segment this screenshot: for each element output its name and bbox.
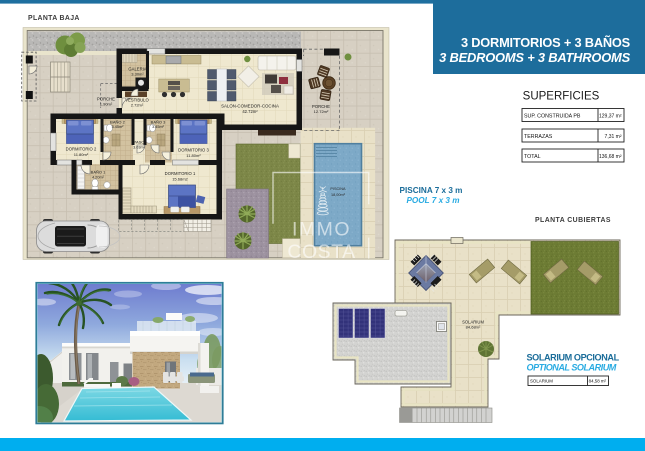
svg-text:DORMITORIO 3: DORMITORIO 3	[178, 148, 209, 153]
svg-text:SALON-COMEDOR-COCINA: SALON-COMEDOR-COCINA	[221, 104, 279, 109]
svg-text:3.30m²: 3.30m²	[131, 72, 144, 77]
svg-text:4.20m²: 4.20m²	[92, 176, 105, 180]
svg-text:2.72m²: 2.72m²	[131, 103, 144, 108]
svg-text:PLANTA BAJA: PLANTA BAJA	[28, 15, 80, 22]
svg-text:PASO: PASO	[134, 140, 145, 145]
svg-text:PLANTA CUBIERTAS: PLANTA CUBIERTAS	[535, 217, 611, 224]
svg-text:TERRAZAS: TERRAZAS	[524, 134, 553, 140]
svg-text:PISCINA 7 x 3 m: PISCINA 7 x 3 m	[400, 186, 463, 195]
svg-text:BAÑO 1: BAÑO 1	[91, 170, 106, 175]
svg-text:DORMITORIO 2: DORMITORIO 2	[66, 147, 97, 152]
svg-text:15.68m2: 15.68m2	[172, 177, 188, 182]
svg-text:3.45m²: 3.45m²	[152, 125, 165, 129]
svg-text:SOLARIUM: SOLARIUM	[530, 379, 553, 384]
svg-text:POOL 7 x 3 m: POOL 7 x 3 m	[406, 196, 459, 205]
svg-text:3.45m²: 3.45m²	[112, 125, 125, 129]
svg-text:136,68 m²: 136,68 m²	[599, 154, 622, 160]
svg-text:PISCINA: PISCINA	[330, 187, 346, 191]
svg-text:42.72m²: 42.72m²	[242, 109, 258, 114]
svg-text:COSTA: COSTA	[287, 241, 355, 263]
svg-text:TOTAL: TOTAL	[524, 154, 541, 160]
svg-text:129,37 m²: 129,37 m²	[599, 114, 622, 120]
svg-text:84,58 m²: 84,58 m²	[589, 379, 607, 384]
svg-text:3 DORMITORIOS + 3 BAÑOS: 3 DORMITORIOS + 3 BAÑOS	[461, 35, 631, 50]
svg-text:BAÑO 2: BAÑO 2	[110, 120, 125, 125]
svg-text:OPTIONAL SOLARIUM: OPTIONAL SOLARIUM	[527, 363, 617, 373]
svg-text:SUPERFICIES: SUPERFICIES	[523, 91, 600, 103]
svg-text:12.72m²: 12.72m²	[314, 109, 329, 114]
svg-text:SUP. CONSTRUIDA PB: SUP. CONSTRUIDA PB	[524, 114, 581, 120]
svg-text:7,31 m²: 7,31 m²	[605, 134, 622, 140]
svg-text:11.80m²: 11.80m²	[186, 153, 201, 158]
svg-text:18,00m²: 18,00m²	[331, 193, 346, 197]
svg-text:BAÑO 3: BAÑO 3	[151, 120, 166, 125]
svg-text:84,68m²: 84,68m²	[466, 325, 481, 330]
svg-text:11.80m²: 11.80m²	[74, 152, 89, 157]
svg-text:DORMITORIO 1: DORMITORIO 1	[165, 171, 196, 176]
svg-text:SOLARIUM OPCIONAL: SOLARIUM OPCIONAL	[527, 353, 620, 363]
svg-text:1.90m²: 1.90m²	[100, 102, 113, 107]
svg-text:IMMO: IMMO	[292, 219, 351, 241]
svg-text:3.03m²: 3.03m²	[133, 146, 146, 150]
svg-text:3 BEDROOMS + 3 BATHROOMS: 3 BEDROOMS + 3 BATHROOMS	[439, 50, 630, 65]
